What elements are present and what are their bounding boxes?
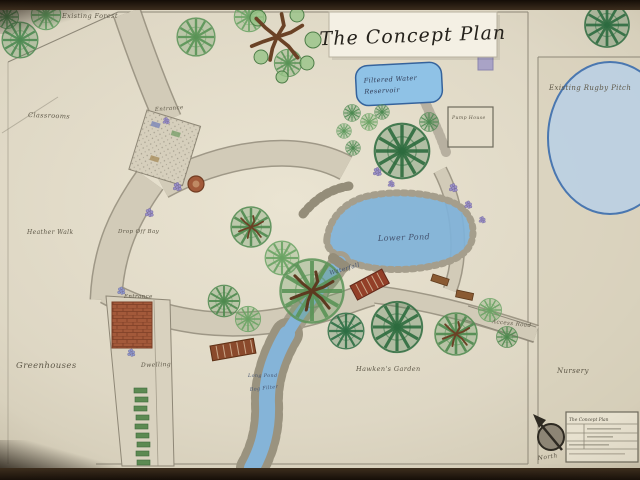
label-classrooms: Classrooms [28,111,71,120]
bush-icon [420,113,439,132]
tree-icon [497,327,518,348]
label-dwelling: Dwelling [140,361,171,369]
label-nursery: Nursery [556,367,589,375]
bush-icon [344,105,361,122]
label-greenhouses: Greenhouses [16,361,77,371]
flower-icon [388,180,395,187]
bush-icon [361,114,378,131]
tree-icon [177,18,215,56]
bush-icon [375,105,390,120]
label-existing-rugby-pitch: Existing Rugby Pitch [548,84,631,92]
bush-icon [346,141,361,156]
photo-edge-bottom [0,468,640,480]
filtered-water-reservoir: Filtered Water Reservoir [355,62,443,106]
title-block-project-name: The Concept Plan [569,418,609,423]
plan-drawing: Filtered Water Reservoir Pump House [0,0,640,480]
large-tree-icon [372,302,422,352]
label-lower-pond: Lower Pond [377,232,431,243]
photo-edge-top [0,0,640,10]
round-planter [188,176,204,192]
label-hawkens-garden: Hawken's Garden [355,365,421,373]
bench [431,274,449,286]
tree-icon [235,306,260,331]
title-block: The Concept Plan [566,412,638,462]
tree-icon [208,285,240,317]
large-tree-icon [375,124,430,179]
bush-icon [337,124,352,139]
label-drop-off-bay: Drop Off Bay [117,229,160,235]
tree-icon [478,298,501,321]
bench [456,290,474,300]
pump-house: Pump House [448,107,493,147]
photo-of-concept-plan: Filtered Water Reservoir Pump House [0,0,640,480]
label-entrance-lower: Entrance [123,294,153,300]
label-long-pond: Long Pond [247,373,277,379]
title-box: The Concept Plan [319,12,506,60]
lower-bridge [210,338,256,360]
pump-house-label: Pump House [451,115,486,121]
flower-icon [465,201,472,209]
trees [0,0,629,355]
label-heather-walk: Heather Walk [26,229,74,236]
flower-icon [479,216,486,223]
brick-entrance-path [112,302,152,348]
tree-icon [328,313,364,349]
